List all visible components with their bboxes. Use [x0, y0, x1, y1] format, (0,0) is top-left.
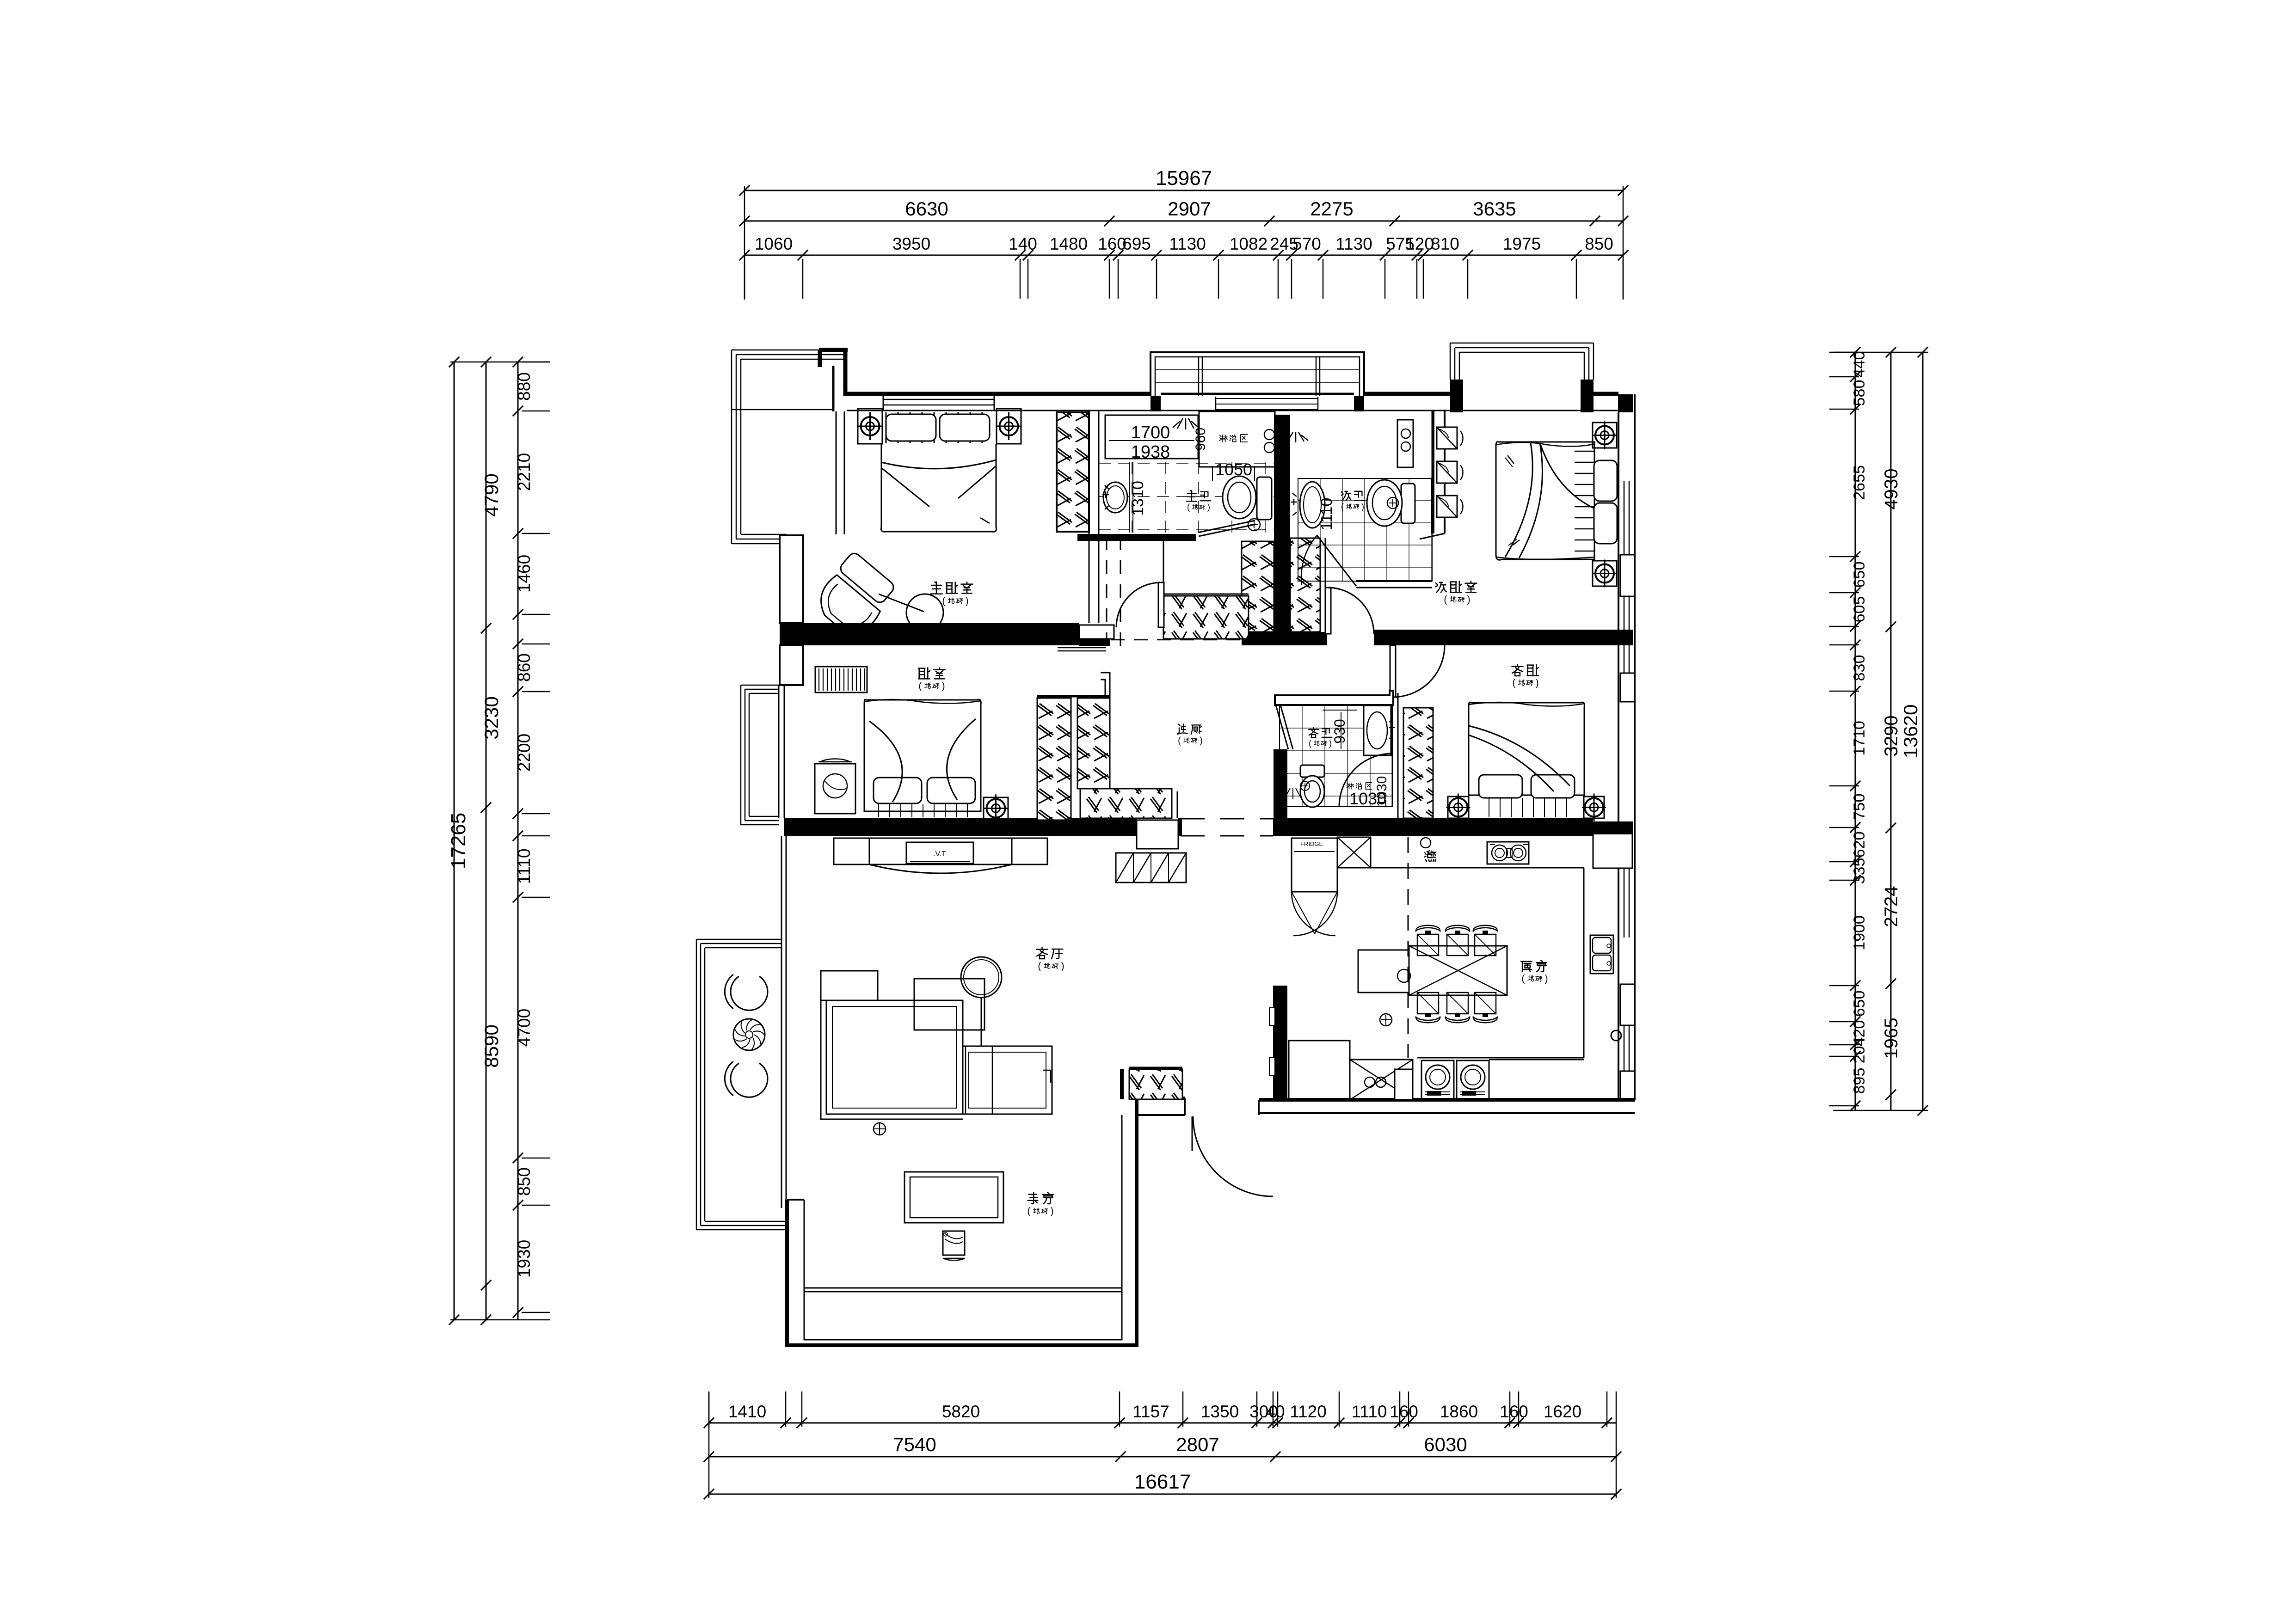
- svg-text:1938: 1938: [1131, 442, 1170, 462]
- svg-text:2200: 2200: [515, 734, 534, 772]
- svg-text:580: 580: [1851, 380, 1868, 406]
- svg-text:): ): [1061, 961, 1064, 972]
- svg-text:4930: 4930: [1881, 469, 1901, 510]
- svg-text:335: 335: [1851, 858, 1868, 884]
- svg-text:1620: 1620: [1544, 1402, 1581, 1421]
- svg-text:750: 750: [1851, 794, 1868, 820]
- svg-text:1900: 1900: [1851, 915, 1868, 950]
- svg-text:6630: 6630: [905, 198, 948, 220]
- svg-text:(: (: [918, 681, 922, 692]
- svg-text:): ): [1545, 974, 1548, 984]
- svg-text:4700: 4700: [515, 1009, 534, 1047]
- svg-text:1110: 1110: [515, 849, 534, 884]
- svg-text:204: 204: [1851, 1037, 1868, 1064]
- svg-text:.V.T: .V.T: [933, 850, 946, 858]
- svg-text:930: 930: [1331, 719, 1348, 743]
- svg-text:): ): [1051, 1206, 1054, 1217]
- svg-text:695: 695: [1122, 234, 1151, 253]
- svg-text:1410: 1410: [728, 1402, 766, 1421]
- svg-text:1060: 1060: [755, 234, 793, 253]
- svg-text:1030: 1030: [1374, 776, 1390, 807]
- svg-text:1130: 1130: [1169, 234, 1206, 253]
- svg-text:(: (: [1521, 974, 1525, 984]
- svg-text:1310: 1310: [1129, 481, 1147, 516]
- svg-text:1110: 1110: [1318, 498, 1335, 531]
- svg-text:860: 860: [515, 653, 534, 682]
- svg-text:650: 650: [1851, 991, 1868, 1017]
- svg-text:1930: 1930: [515, 1240, 534, 1278]
- svg-text:): ): [1467, 594, 1471, 605]
- svg-text:1120: 1120: [1290, 1402, 1327, 1421]
- svg-text:(: (: [1187, 503, 1190, 512]
- svg-text:620: 620: [1851, 832, 1868, 858]
- svg-text:960: 960: [1193, 428, 1208, 451]
- svg-text:2275: 2275: [1310, 198, 1353, 220]
- svg-text:850: 850: [1585, 234, 1613, 253]
- svg-text:): ): [1200, 735, 1203, 746]
- svg-text:17265: 17265: [447, 813, 470, 869]
- svg-text:13620: 13620: [1900, 705, 1921, 759]
- svg-text:650: 650: [1851, 562, 1868, 588]
- svg-text:810: 810: [1431, 234, 1459, 253]
- svg-text:(: (: [1341, 502, 1344, 511]
- svg-text:3230: 3230: [480, 696, 502, 739]
- svg-text:6030: 6030: [1424, 1434, 1467, 1455]
- svg-text:605: 605: [1851, 596, 1868, 623]
- svg-text:2807: 2807: [1176, 1434, 1219, 1455]
- svg-text:): ): [942, 681, 945, 692]
- svg-text:): ): [1361, 502, 1364, 511]
- svg-text:(: (: [1178, 735, 1181, 746]
- svg-text:1350: 1350: [1201, 1402, 1239, 1421]
- svg-text:(: (: [1038, 961, 1041, 972]
- svg-text:570: 570: [1292, 234, 1321, 253]
- svg-text:): ): [1207, 503, 1210, 512]
- svg-text:1480: 1480: [1050, 234, 1088, 253]
- svg-text:440: 440: [1851, 351, 1868, 378]
- svg-text:1050: 1050: [1215, 460, 1252, 479]
- svg-text:): ): [966, 596, 969, 607]
- svg-text:(: (: [942, 596, 945, 607]
- svg-text:120: 120: [1405, 234, 1434, 253]
- svg-text:1975: 1975: [1503, 234, 1541, 253]
- svg-text:(: (: [1309, 739, 1311, 748]
- svg-text:(: (: [1027, 1206, 1030, 1217]
- svg-text:3290: 3290: [1881, 716, 1901, 757]
- svg-text:40: 40: [1266, 1402, 1285, 1421]
- svg-text:FRIDGE: FRIDGE: [1300, 840, 1323, 847]
- svg-text:830: 830: [1851, 655, 1868, 681]
- svg-text:2655: 2655: [1851, 465, 1868, 500]
- svg-text:1460: 1460: [515, 555, 534, 593]
- svg-text:16617: 16617: [1134, 1471, 1191, 1493]
- svg-text:1700: 1700: [1131, 423, 1170, 442]
- svg-text:1157: 1157: [1132, 1402, 1169, 1421]
- svg-text:15967: 15967: [1156, 167, 1212, 190]
- svg-text:8590: 8590: [480, 1024, 502, 1067]
- svg-text:2724: 2724: [1881, 886, 1901, 927]
- svg-text:1860: 1860: [1440, 1402, 1478, 1421]
- svg-text:(: (: [1512, 678, 1515, 688]
- svg-text:140: 140: [1009, 234, 1037, 253]
- svg-text:2210: 2210: [515, 453, 534, 491]
- svg-text:): ): [1536, 678, 1539, 688]
- svg-text:850: 850: [515, 1167, 534, 1196]
- svg-text:7540: 7540: [893, 1434, 936, 1455]
- svg-text:880: 880: [515, 372, 534, 401]
- svg-text:1965: 1965: [1881, 1018, 1901, 1059]
- svg-text:1110: 1110: [1352, 1402, 1387, 1421]
- svg-text:895: 895: [1851, 1068, 1868, 1094]
- svg-text:5820: 5820: [942, 1402, 980, 1421]
- svg-text:2907: 2907: [1168, 198, 1211, 220]
- svg-text:1710: 1710: [1851, 721, 1868, 756]
- svg-text:): ): [1329, 739, 1332, 748]
- svg-text:(: (: [1444, 594, 1447, 605]
- svg-text:160: 160: [1500, 1402, 1528, 1421]
- svg-text:160: 160: [1390, 1402, 1418, 1421]
- svg-text:3635: 3635: [1473, 198, 1516, 220]
- svg-text:1130: 1130: [1335, 234, 1372, 253]
- svg-text:4790: 4790: [480, 473, 502, 516]
- svg-text:1082: 1082: [1230, 234, 1267, 253]
- svg-text:3950: 3950: [892, 234, 930, 253]
